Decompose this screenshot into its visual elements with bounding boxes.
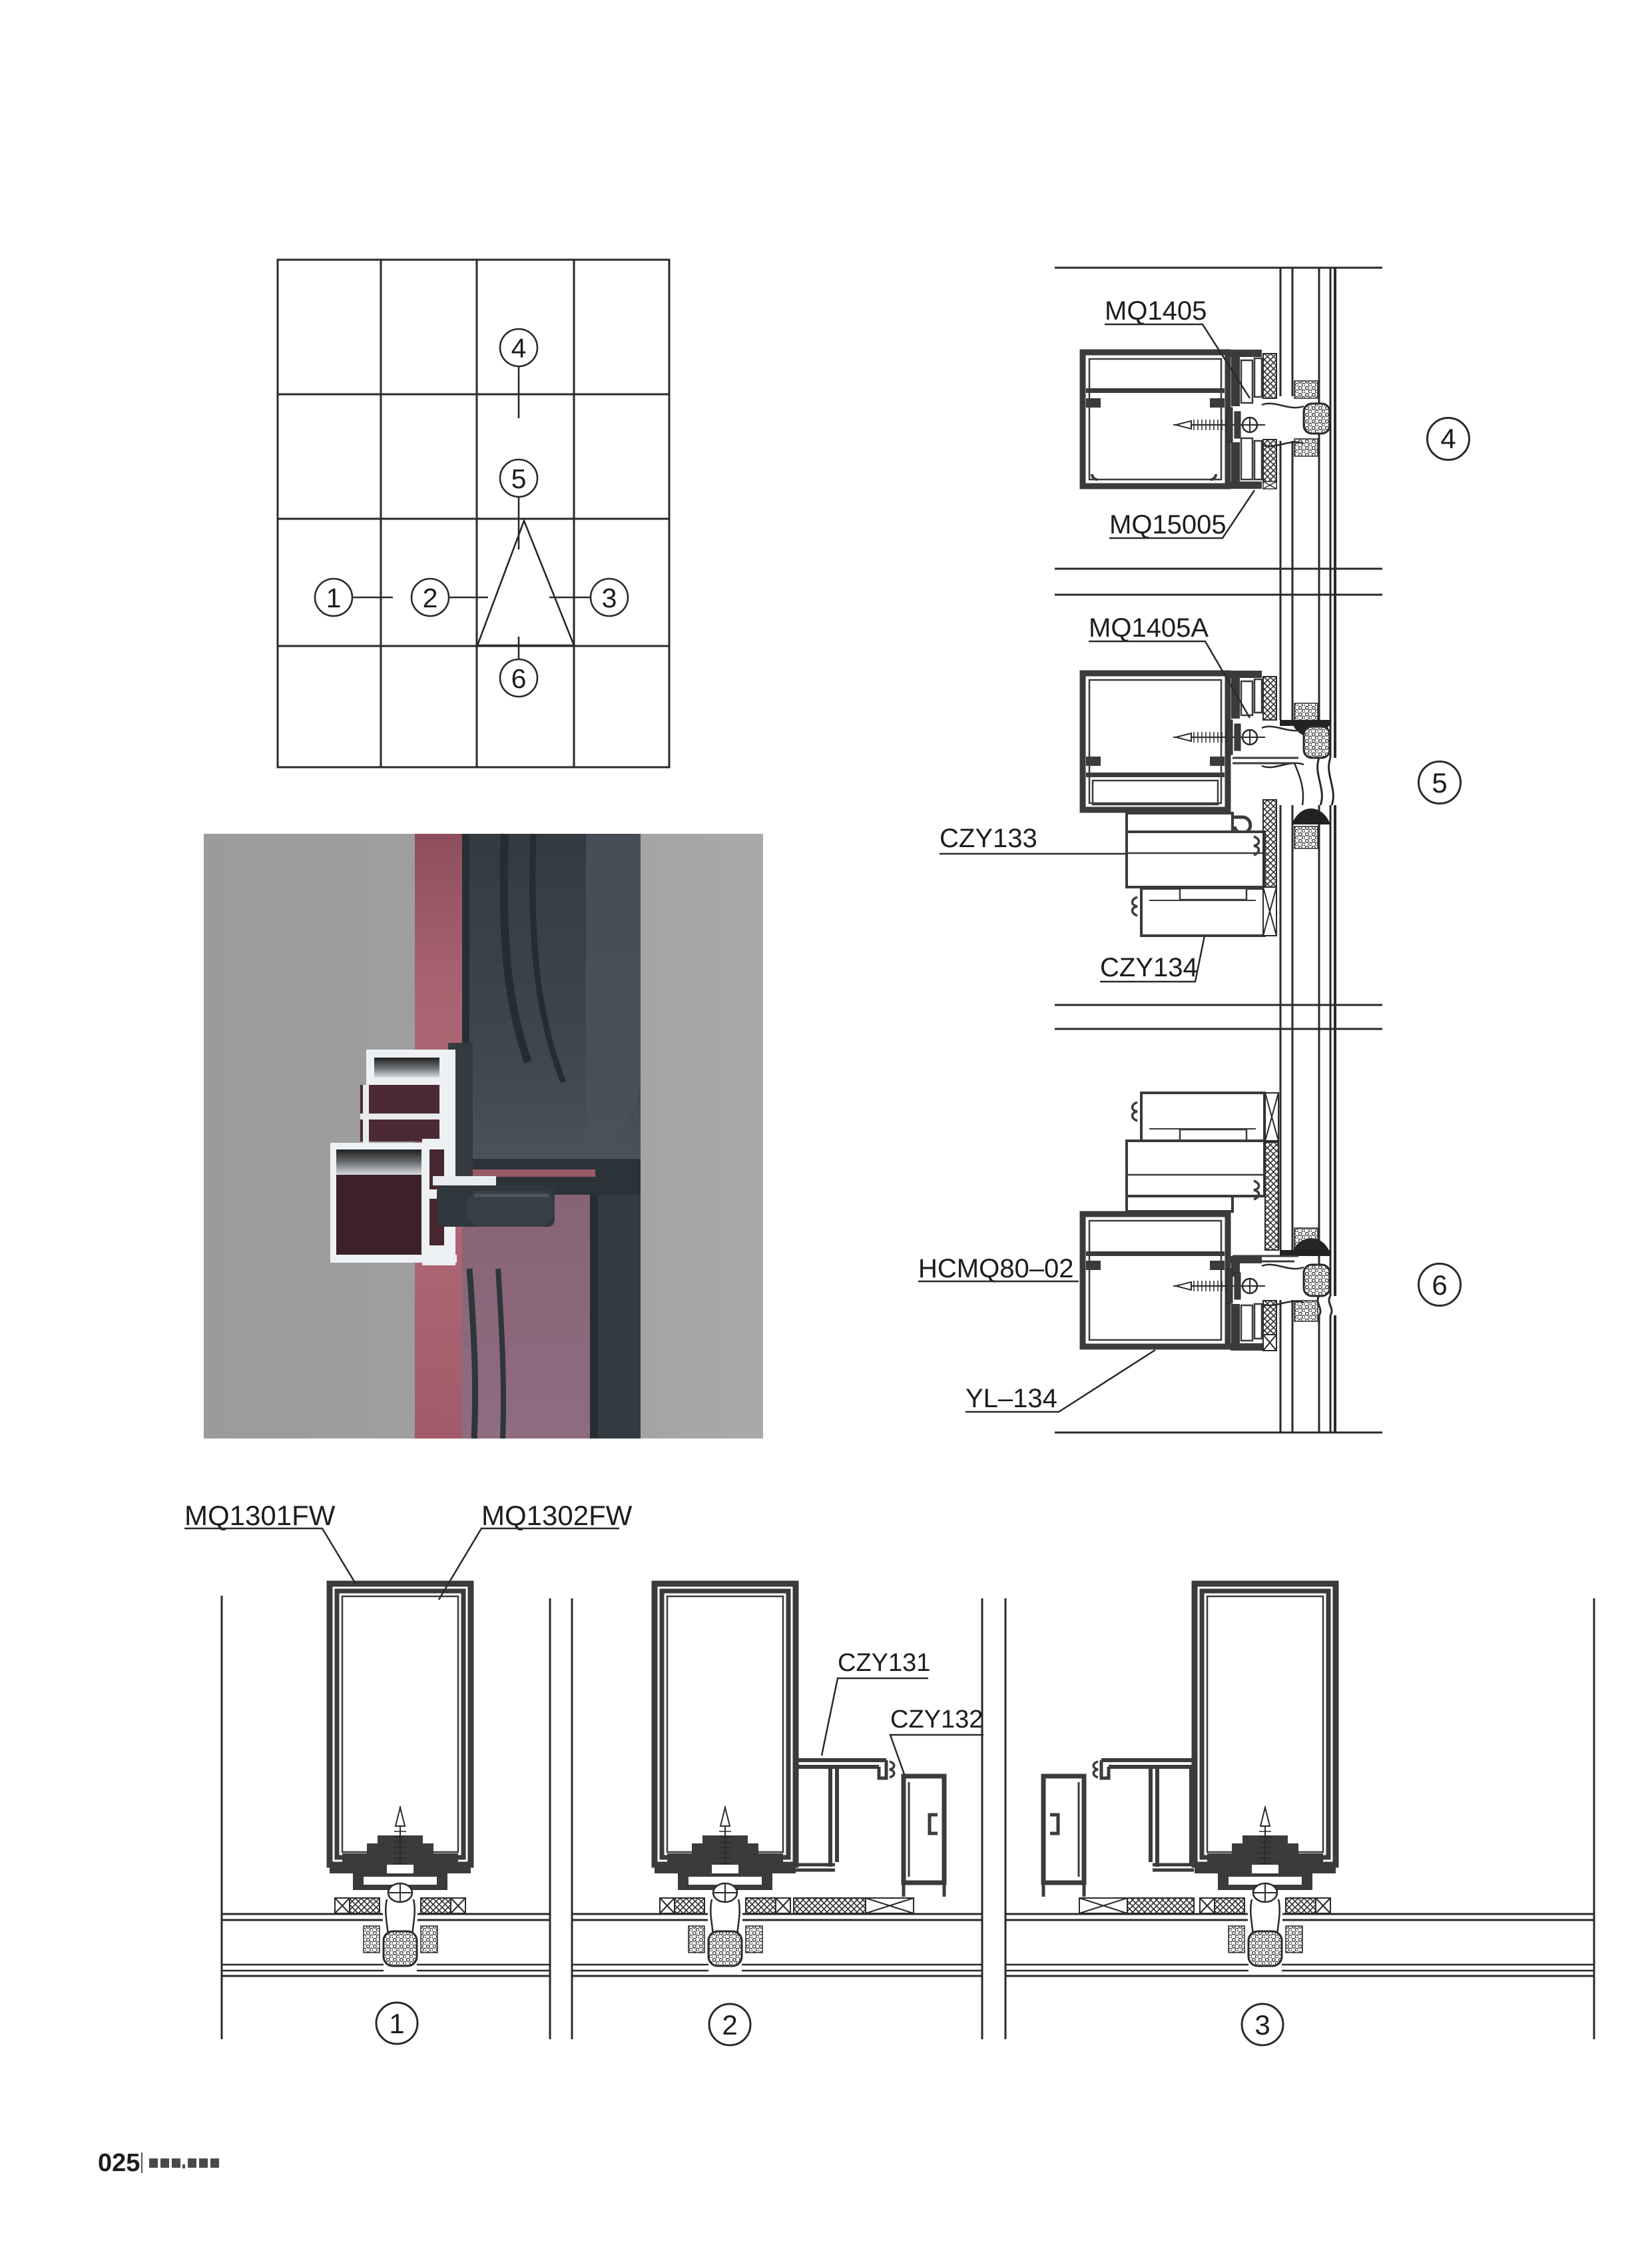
- svg-text:4: 4: [1440, 423, 1456, 454]
- svg-text:HCMQ80–02: HCMQ80–02: [918, 1254, 1073, 1283]
- svg-text:MQ15005: MQ15005: [1109, 510, 1227, 539]
- svg-text:4: 4: [511, 333, 527, 364]
- svg-text:MQ1302FW: MQ1302FW: [481, 1500, 633, 1531]
- svg-text:MQ1405: MQ1405: [1105, 296, 1207, 326]
- svg-text:MQ1301FW: MQ1301FW: [184, 1500, 336, 1531]
- svg-text:CZY132: CZY132: [890, 1706, 983, 1734]
- svg-text:MQ1405A: MQ1405A: [1089, 613, 1209, 643]
- svg-text:YL–134: YL–134: [965, 1384, 1057, 1413]
- svg-text:CZY131: CZY131: [838, 1649, 930, 1677]
- svg-text:5: 5: [511, 464, 527, 494]
- svg-text:6: 6: [1432, 1269, 1447, 1301]
- svg-text:5: 5: [1432, 767, 1447, 799]
- svg-text:1: 1: [326, 583, 342, 613]
- svg-text:2: 2: [423, 583, 438, 613]
- svg-text:2: 2: [722, 2009, 737, 2041]
- svg-text:3: 3: [602, 583, 617, 613]
- svg-text:025: 025: [98, 2149, 140, 2177]
- svg-text:3: 3: [1254, 2009, 1270, 2041]
- svg-text:CZY133: CZY133: [940, 824, 1037, 853]
- svg-text:6: 6: [511, 663, 527, 694]
- svg-text:1: 1: [389, 2008, 404, 2039]
- svg-text:CZY134: CZY134: [1100, 953, 1198, 982]
